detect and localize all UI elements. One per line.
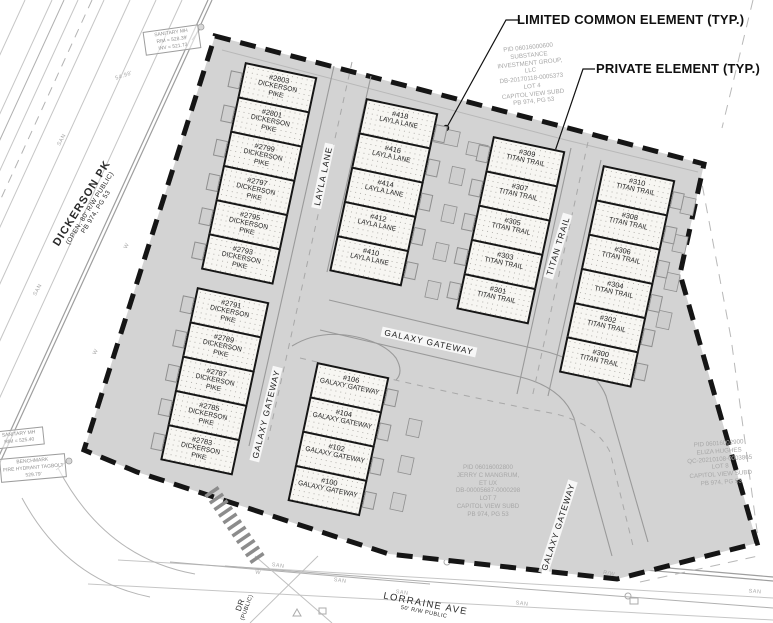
callout-limited-common-element: LIMITED COMMON ELEMENT (TYP.): [517, 12, 744, 27]
parcel-note-lot7: PID 06016002800JERRY C MANGRUM,ET UXDB-0…: [436, 464, 540, 518]
parcel-note-lot4: PID 06016000600SUBSTANCEINVESTMENT GROUP…: [481, 39, 581, 110]
text-line: PB 974, PG 53: [436, 511, 540, 519]
parcel-note-lot8: PID 06016002900ELIZA HUGHESQC-20210108-0…: [667, 436, 773, 490]
text-line: DB-00005687-0000298: [436, 487, 540, 495]
text-line: LOT 7: [436, 495, 540, 503]
text-line: ET UX: [436, 480, 540, 488]
site-plan: #2803DICKERSON PIKE#2801DICKERSON PIKE#2…: [0, 0, 773, 623]
text-line: CAPITOL VIEW SUBD: [436, 503, 540, 511]
callout-private-element: PRIVATE ELEMENT (TYP.): [596, 61, 760, 76]
text-line: JERRY C MANGRUM,: [436, 472, 540, 480]
san-label: SAN: [748, 588, 761, 595]
text-line: PID 06016002800: [436, 464, 540, 472]
water-label: W: [255, 570, 262, 577]
